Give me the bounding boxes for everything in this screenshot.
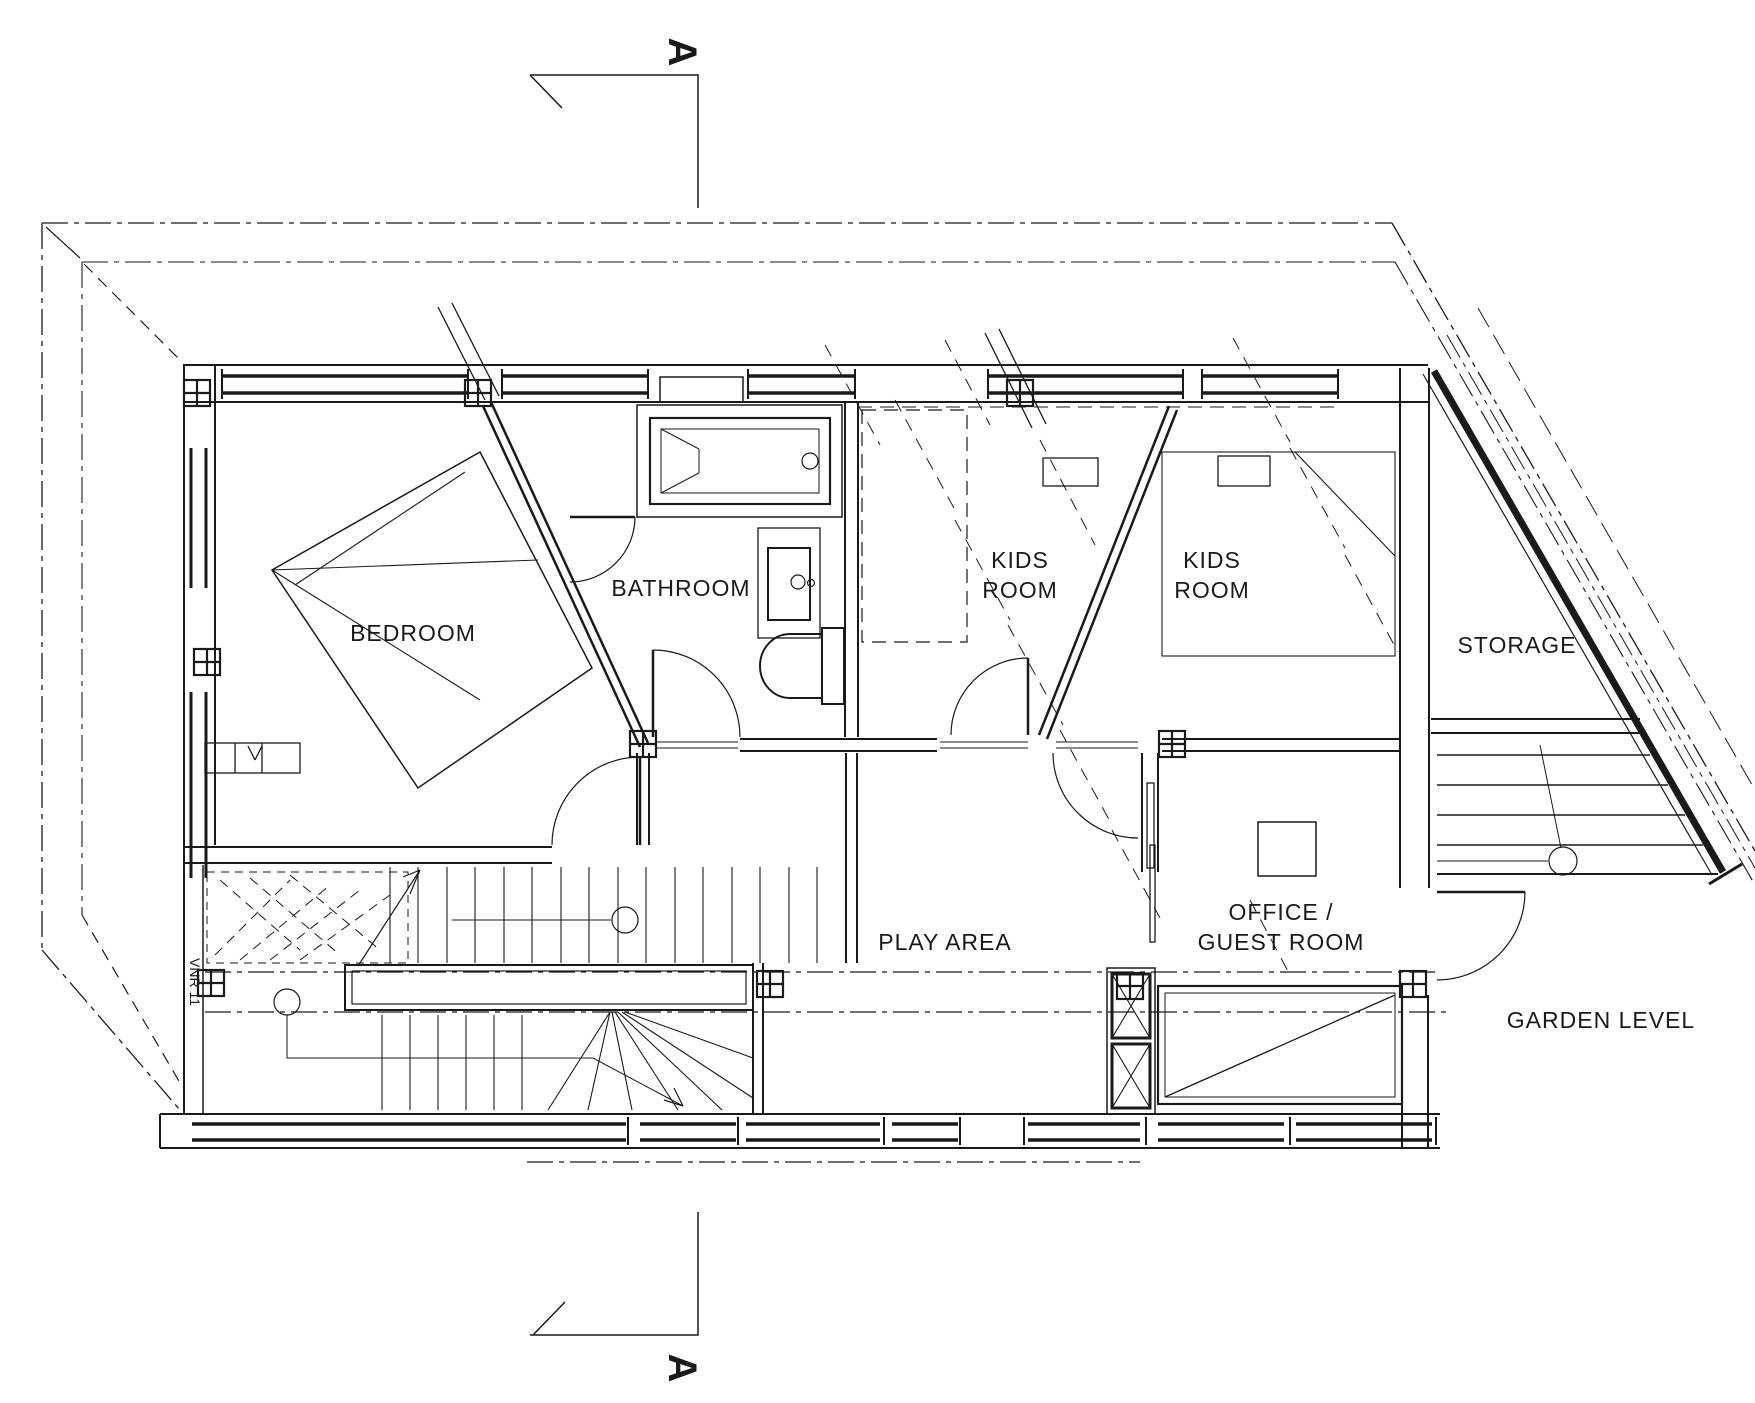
office-left-wall (1142, 753, 1158, 942)
section-marker-top (530, 75, 698, 208)
top-wall (183, 365, 1428, 402)
label-stair-note: VNR 11 (187, 958, 203, 1006)
bedroom-closet (205, 743, 300, 773)
office-guest-bed (1158, 986, 1402, 1104)
column-marker (757, 971, 783, 997)
office-desk (1258, 822, 1316, 876)
hall-bottom-wall (655, 739, 1400, 751)
bathroom-door (653, 650, 740, 737)
stair-upper-run-treads (390, 867, 846, 963)
vestibule-door (570, 517, 635, 582)
label-bathroom: BATHROOM (611, 575, 750, 601)
stair-direction-lines (274, 870, 683, 1106)
sloped-roof-edge-wall (1423, 371, 1742, 884)
roof-outline-dashdot (42, 223, 1755, 1162)
section-label-top: A (660, 38, 704, 67)
floor-plan-sheet: A A BEDROOM BATHROOM KIDS ROOM KIDS ROOM… (0, 0, 1755, 1403)
door-thresholds (655, 742, 1138, 748)
label-kids-room-2-line1: KIDS (1183, 547, 1241, 573)
bathroom-right-wall (845, 403, 858, 737)
stair-lower-run-treads (382, 1015, 522, 1110)
label-kids-room-1-line1: KIDS (991, 547, 1049, 573)
column-marker (1400, 971, 1426, 997)
kids-room-1-dashed-zone (862, 410, 967, 642)
label-office-line1: OFFICE / (1228, 899, 1333, 925)
section-marker-bottom (530, 1212, 698, 1335)
column-marker (194, 649, 220, 675)
hall-right-wall (846, 753, 857, 963)
bottom-wall (160, 1114, 1440, 1148)
label-play-area: PLAY AREA (878, 929, 1011, 955)
floor-plan-drawing: A A BEDROOM BATHROOM KIDS ROOM KIDS ROOM… (0, 0, 1755, 1403)
bedroom-bottom-wall (184, 753, 649, 863)
bottom-wall-windows (192, 1124, 1432, 1140)
garden-stairs (1437, 745, 1718, 875)
top-wall-windows (222, 376, 1338, 393)
label-office-line2: GUEST ROOM (1198, 929, 1365, 955)
label-bedroom: BEDROOM (350, 620, 476, 646)
under-stair-hatch (207, 872, 408, 963)
kids-room-2-wardrobe (1218, 456, 1270, 486)
toilet (760, 628, 844, 704)
column-marker (1117, 973, 1143, 999)
sink (758, 528, 820, 638)
bathtub (637, 405, 842, 517)
column-marker (1159, 731, 1185, 757)
kids-room-1-door (951, 658, 1028, 735)
top-wall-niche (660, 377, 743, 402)
bedroom-door (552, 757, 640, 845)
stair-winder-treads (548, 1012, 753, 1110)
kids-rooms-angled-wall (1039, 406, 1177, 739)
tub-drain (802, 453, 818, 469)
label-garden-level: GARDEN LEVEL (1507, 1007, 1695, 1033)
label-storage: STORAGE (1457, 632, 1576, 658)
garden-level-door (1437, 892, 1525, 980)
label-kids-room-2-line2: ROOM (1174, 577, 1250, 603)
label-kids-room-1-line2: ROOM (982, 577, 1058, 603)
section-label-bottom: A (660, 1354, 704, 1383)
